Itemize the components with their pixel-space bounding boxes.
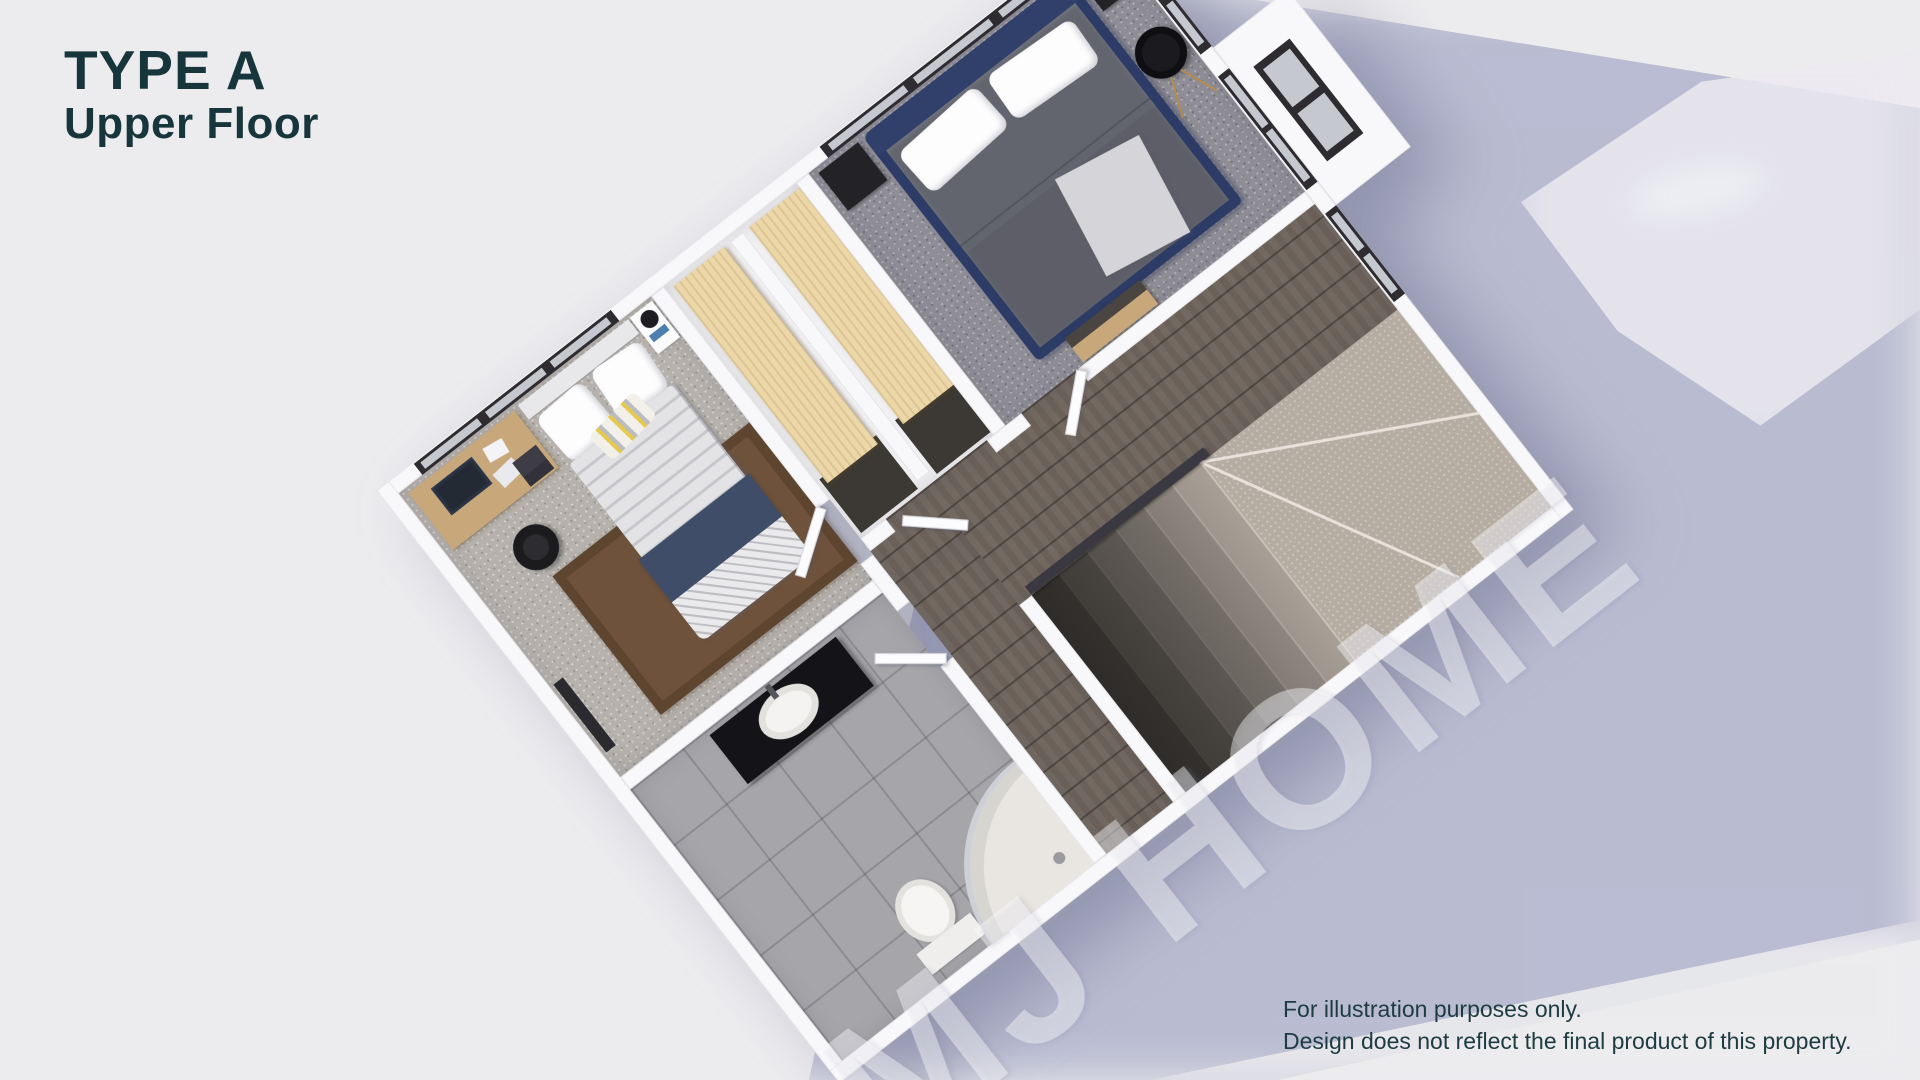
disclaimer: For illustration purposes only. Design d… [1283,993,1852,1057]
plan-header: TYPE A Upper Floor [64,42,319,147]
page-title: TYPE A [64,42,319,99]
floorplan-scene: MJ HOME TYPE A Upper Floor For illustrat… [0,0,1920,1080]
disclaimer-line-2: Design does not reflect the final produc… [1283,1025,1852,1057]
page-subtitle: Upper Floor [64,101,319,147]
disclaimer-line-1: For illustration purposes only. [1283,993,1852,1025]
bathroom-door [875,653,947,664]
